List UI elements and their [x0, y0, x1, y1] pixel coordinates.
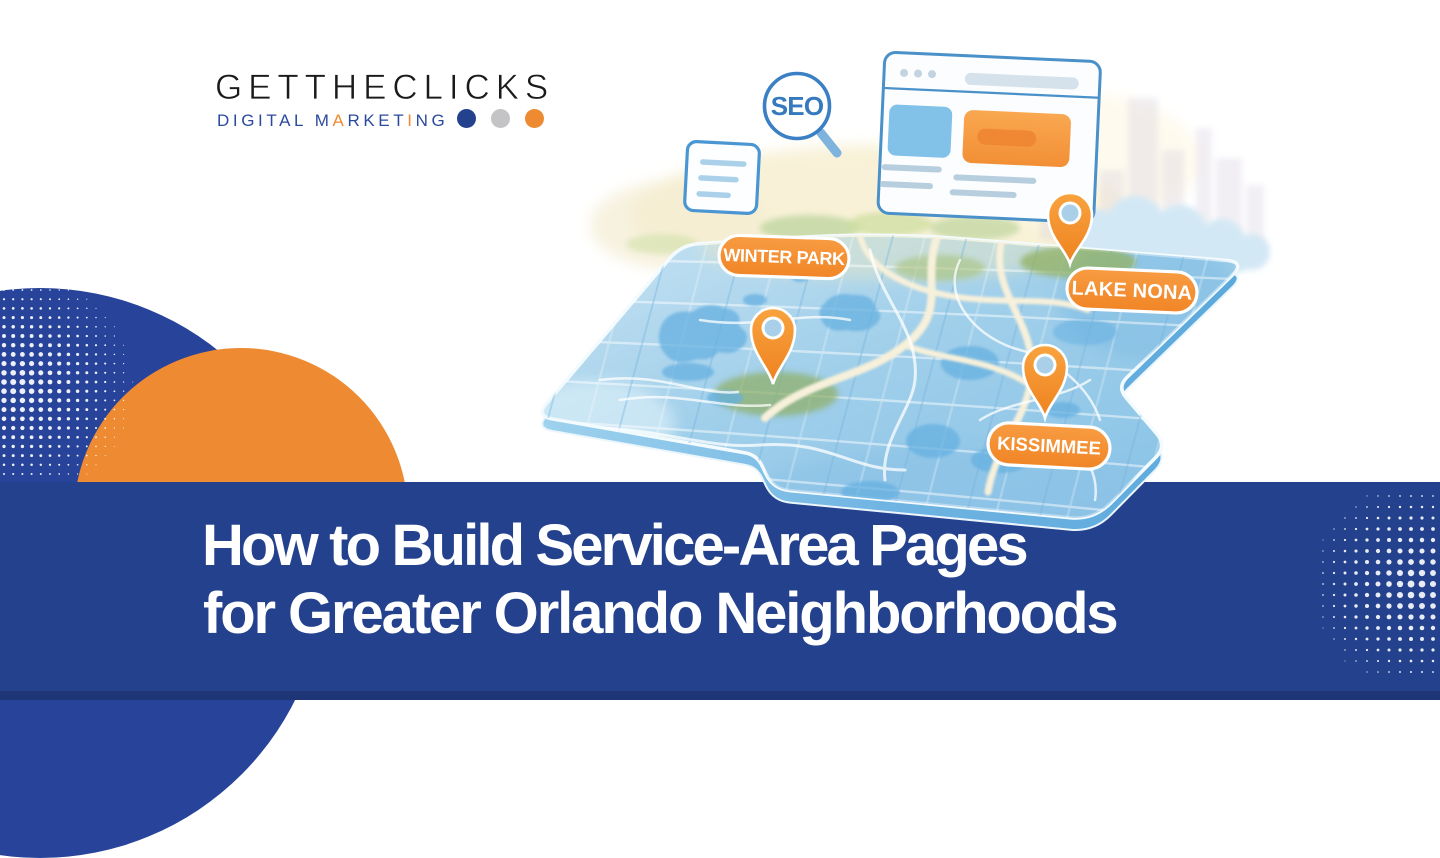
svg-text:SEO: SEO [771, 91, 824, 121]
svg-text:WINTER PARK: WINTER PARK [723, 245, 845, 269]
